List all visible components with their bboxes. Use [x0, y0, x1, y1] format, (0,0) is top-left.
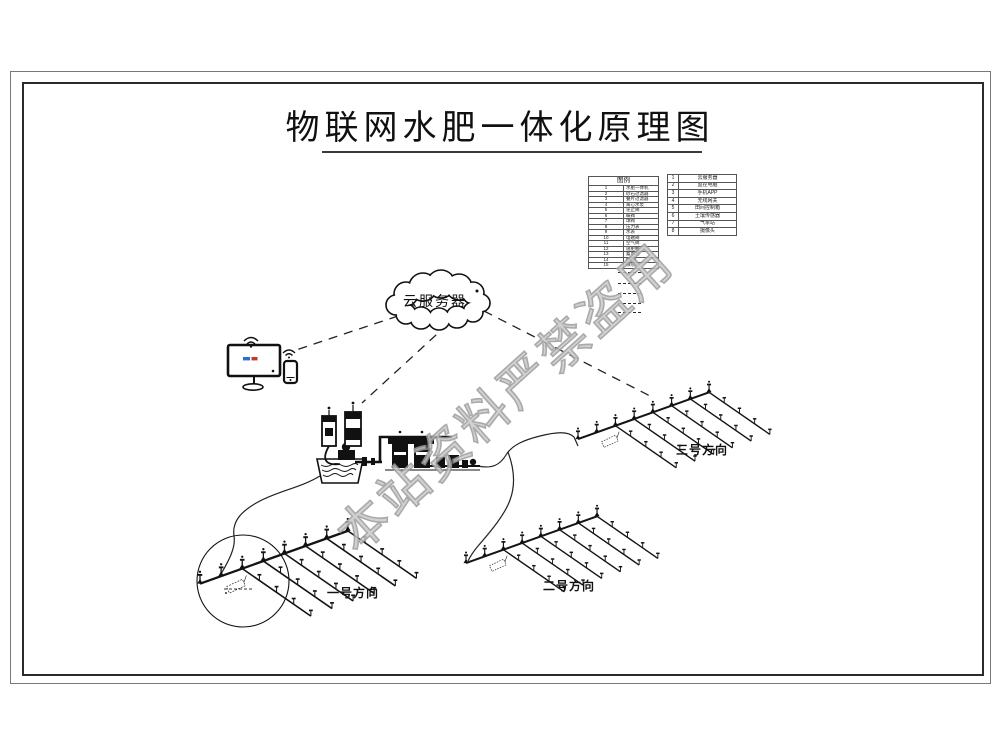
legend-row: 4无线网关: [668, 197, 737, 205]
schematic-canvas: [0, 0, 1000, 750]
legend-row: 6土壤传感器: [668, 212, 737, 220]
legend-row: 8摄像头: [668, 228, 737, 236]
legend-table-secondary: 1云服务器2监控电脑3手机APP4无线网关5田间控制箱6土壤传感器7气象站8摄像…: [667, 174, 737, 236]
line-type-sample: [618, 312, 641, 313]
link-cloud-phone: [296, 316, 398, 350]
pump-icon: [338, 450, 355, 460]
monitor-icon: [228, 338, 280, 391]
irrigation-fields: [197, 381, 771, 616]
irrigation-field-3: [576, 381, 772, 468]
suction-hose: [325, 446, 340, 464]
fertigation-station: [317, 402, 480, 483]
fertilizer-tank-icon: [345, 402, 361, 446]
legend-table: 图例 1水肥一体机2砂石过滤器3叠片过滤器4离心水泵5逆止阀6蝶阀7球阀8压力表…: [588, 176, 659, 269]
pipe-to-field3: [478, 433, 578, 467]
legend-row: 3手机APP: [668, 190, 737, 198]
legend-row: 15微喷头: [589, 263, 659, 269]
legend-row: 1云服务器: [668, 175, 737, 183]
wifi-icon: [283, 350, 295, 359]
line-type-sample: [618, 293, 641, 294]
fertilizer-tank-icon: [322, 407, 336, 446]
cloud-dot: [476, 290, 479, 293]
irrigation-field-1: [197, 518, 418, 616]
phone-icon: [283, 350, 297, 383]
link-cloud-field3: [484, 311, 652, 397]
legend-row: 2监控电脑: [668, 182, 737, 190]
line-type-sample: [618, 283, 641, 284]
pipe-to-field2: [468, 452, 514, 561]
legend-title: 图例: [589, 177, 659, 186]
cloud-server-label: 云服务器: [403, 291, 467, 311]
field2-label: 二号方向: [543, 577, 595, 594]
line-type-sample: [618, 272, 641, 273]
legend-row: 7气象站: [668, 220, 737, 228]
wireless-links: [296, 311, 652, 403]
drawing-sheet: 物联网水肥一体化原理图: [0, 0, 1000, 750]
legend-row: 5田间控制箱: [668, 205, 737, 213]
line-type-sample: [618, 303, 641, 304]
field1-label: 一号方向: [327, 584, 379, 601]
field3-label: 三号方向: [676, 441, 728, 458]
link-cloud-station: [362, 324, 448, 403]
